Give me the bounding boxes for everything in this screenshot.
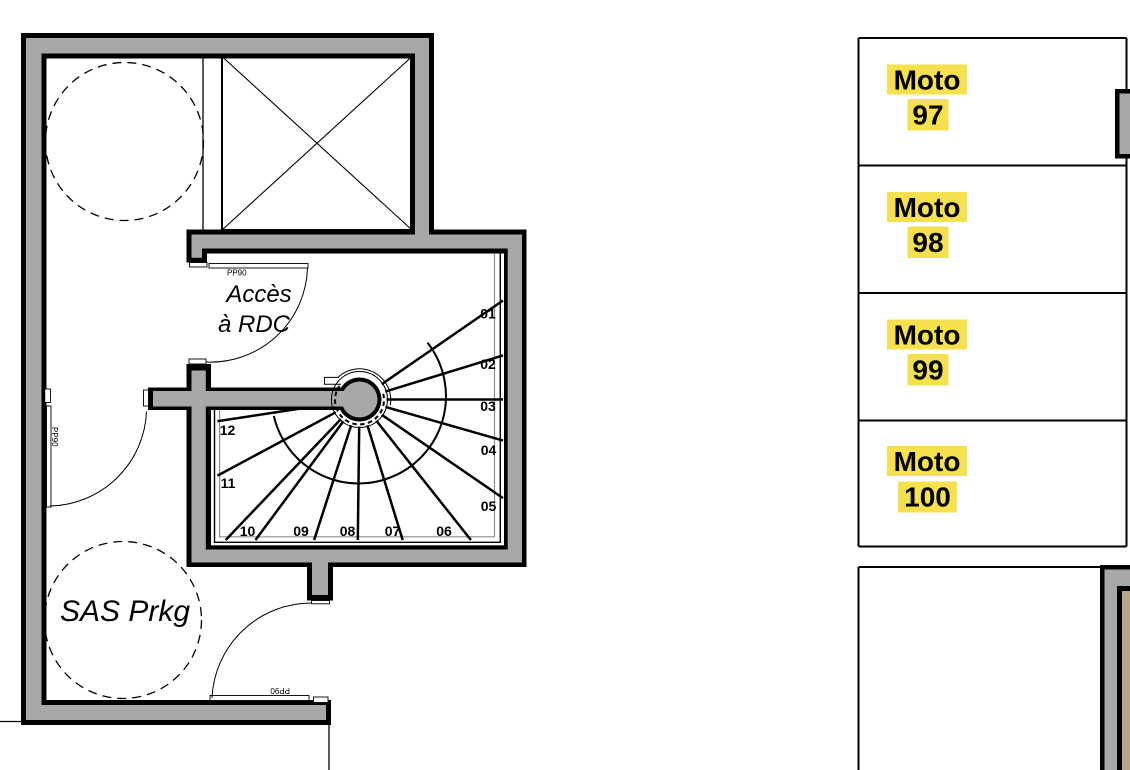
svg-text:Moto: Moto (894, 320, 961, 351)
svg-text:08: 08 (340, 523, 356, 539)
svg-text:98: 98 (912, 227, 943, 258)
svg-text:03: 03 (480, 398, 496, 414)
svg-text:100: 100 (904, 482, 951, 513)
svg-text:Moto: Moto (894, 65, 961, 96)
svg-text:10: 10 (240, 523, 256, 539)
svg-text:PP90: PP90 (270, 686, 290, 695)
svg-text:Moto: Moto (894, 192, 961, 223)
svg-text:99: 99 (912, 355, 943, 386)
svg-text:09: 09 (293, 523, 309, 539)
svg-text:12: 12 (220, 422, 236, 438)
svg-text:PP90: PP90 (50, 427, 59, 447)
svg-text:Accès: Accès (224, 281, 291, 308)
svg-text:à RDC: à RDC (218, 311, 291, 338)
svg-text:Moto: Moto (894, 446, 961, 477)
svg-text:05: 05 (481, 498, 497, 514)
svg-text:07: 07 (385, 523, 401, 539)
svg-text:04: 04 (481, 442, 497, 458)
svg-text:06: 06 (436, 523, 452, 539)
svg-text:11: 11 (221, 475, 236, 491)
svg-text:02: 02 (480, 356, 496, 372)
svg-text:SAS Prkg: SAS Prkg (60, 595, 190, 628)
svg-text:PP90: PP90 (227, 269, 247, 278)
svg-text:01: 01 (480, 306, 496, 322)
svg-text:97: 97 (912, 100, 943, 131)
